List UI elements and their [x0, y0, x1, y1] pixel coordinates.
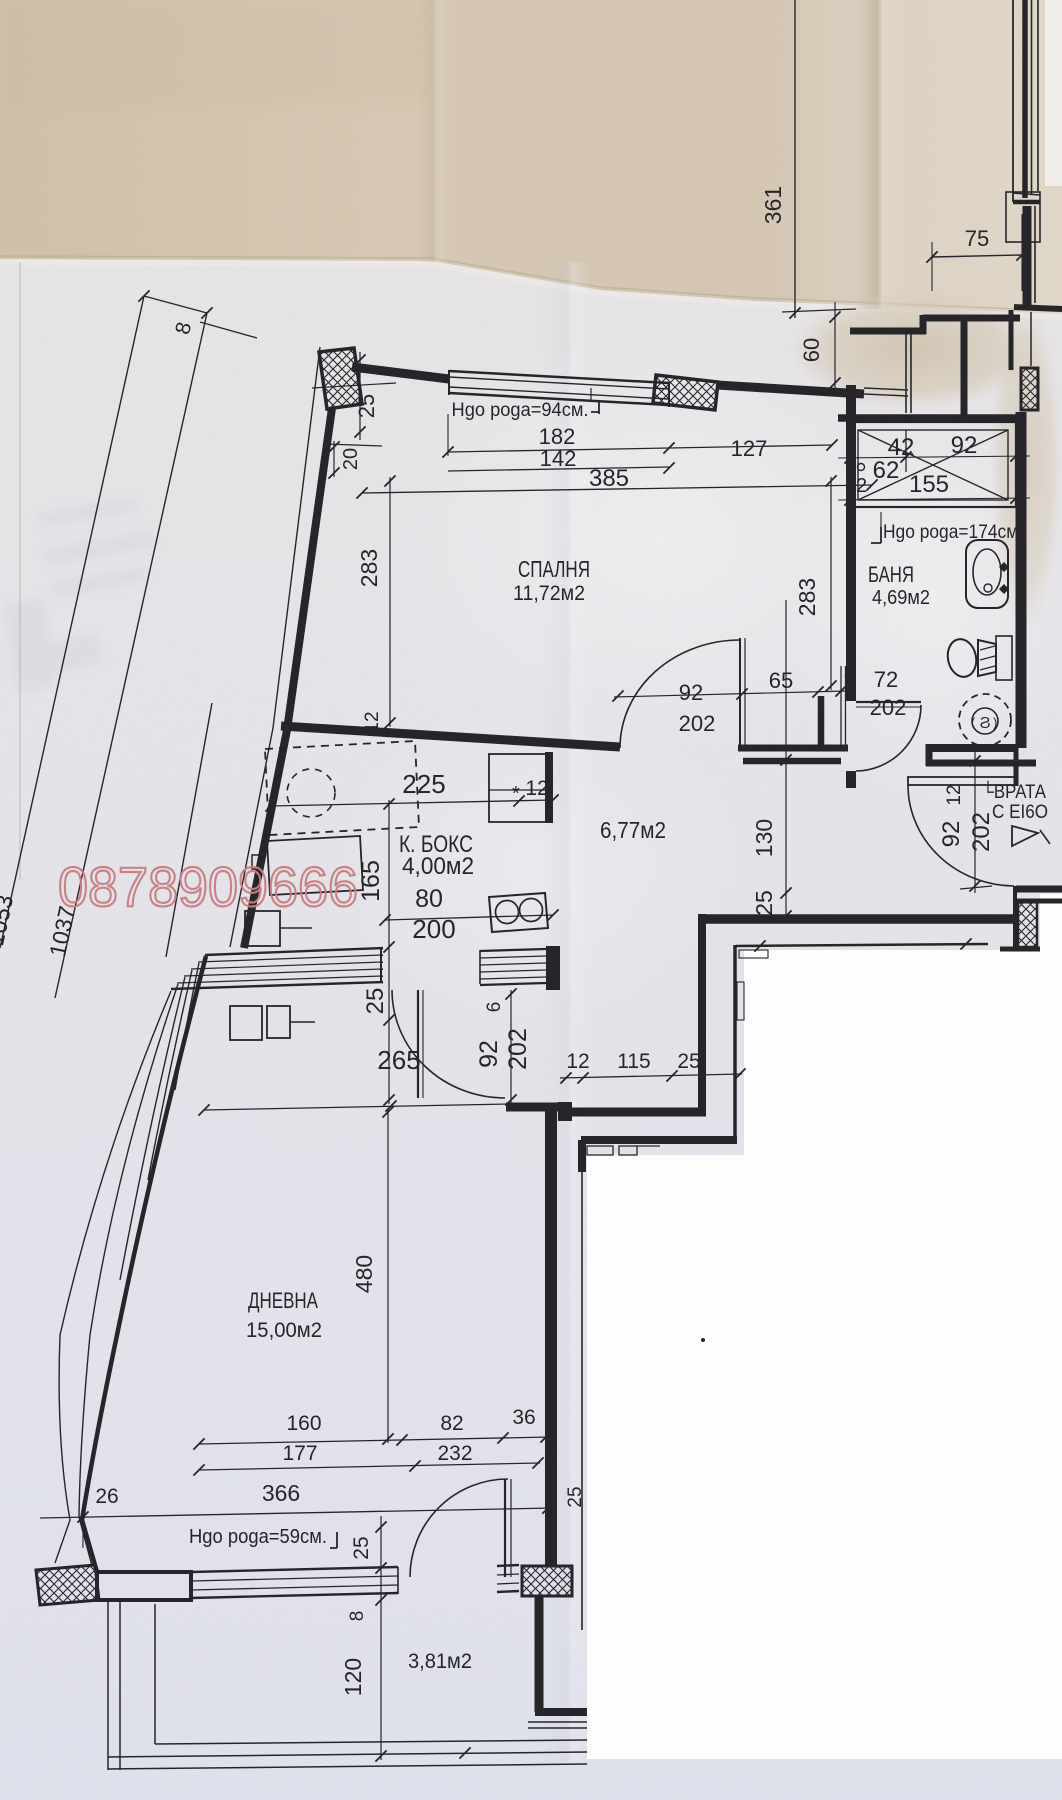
svg-text:6,77м2: 6,77м2 — [600, 817, 666, 843]
svg-text:75: 75 — [965, 226, 989, 251]
svg-text:25: 25 — [350, 1536, 373, 1559]
svg-text:25: 25 — [354, 394, 379, 418]
svg-text:12: 12 — [566, 1050, 589, 1073]
svg-text:62: 62 — [873, 457, 900, 484]
svg-text:└ВРАТА: └ВРАТА — [982, 780, 1046, 803]
svg-text:82: 82 — [440, 1412, 463, 1435]
svg-text:202: 202 — [968, 812, 995, 852]
svg-text:202: 202 — [679, 711, 716, 736]
svg-text:15,00м2: 15,00м2 — [246, 1319, 322, 1342]
svg-text:366: 366 — [262, 1480, 300, 1506]
svg-text:ДНЕВНА: ДНЕВНА — [248, 1288, 318, 1313]
svg-text:283: 283 — [356, 549, 382, 587]
svg-text:202: 202 — [504, 1028, 532, 1070]
svg-text:25: 25 — [677, 1050, 700, 1073]
svg-text:0878909666: 0878909666 — [58, 855, 358, 918]
svg-text:Ϩ: Ϩ — [980, 715, 991, 732]
svg-text:200: 200 — [412, 914, 455, 944]
svg-text:*: * — [512, 783, 520, 805]
svg-text:11,72м2: 11,72м2 — [513, 582, 585, 605]
svg-text:155: 155 — [909, 471, 949, 498]
svg-text:160: 160 — [286, 1412, 321, 1435]
svg-text:Hgo poga=174см.: Hgo poga=174см. — [883, 522, 1023, 543]
svg-text:361: 361 — [760, 186, 786, 224]
svg-text:С ЕI6О: С ЕI6О — [992, 802, 1048, 823]
svg-text:130: 130 — [751, 819, 777, 857]
svg-text:25: 25 — [751, 890, 777, 916]
svg-text:8: 8 — [347, 1611, 368, 1622]
svg-text:20: 20 — [340, 448, 362, 470]
svg-text:26: 26 — [95, 1485, 118, 1508]
svg-text:480: 480 — [351, 1255, 377, 1293]
svg-text:92: 92 — [938, 821, 965, 848]
svg-text:25: 25 — [362, 988, 389, 1015]
svg-text:60: 60 — [799, 338, 824, 362]
svg-text:225: 225 — [402, 769, 445, 799]
svg-text:): ) — [993, 715, 997, 730]
svg-text:12: 12 — [944, 784, 965, 805]
svg-text:80: 80 — [415, 885, 443, 913]
svg-text:283: 283 — [794, 578, 820, 616]
svg-text:92: 92 — [475, 1040, 503, 1068]
svg-text:3,81м2: 3,81м2 — [408, 1650, 472, 1673]
svg-text:165: 165 — [357, 860, 385, 902]
svg-text:232: 232 — [437, 1442, 472, 1465]
svg-text:Hgo poga=94см.: Hgo poga=94см. — [452, 400, 589, 421]
svg-text:БАНЯ: БАНЯ — [868, 562, 914, 587]
svg-text:4,00м2: 4,00м2 — [402, 853, 474, 880]
svg-text:65: 65 — [769, 668, 793, 693]
svg-text:92: 92 — [951, 432, 978, 459]
svg-text:6: 6 — [484, 1002, 505, 1013]
svg-text:120: 120 — [340, 1658, 366, 1696]
svg-text:12: 12 — [525, 777, 548, 800]
svg-text:142: 142 — [540, 446, 577, 471]
svg-text:265: 265 — [377, 1045, 420, 1075]
svg-text:25: 25 — [565, 1486, 586, 1507]
svg-text:Hgo poga=59см.: Hgo poga=59см. — [189, 1526, 327, 1548]
svg-text:92: 92 — [679, 680, 703, 705]
svg-text:385: 385 — [589, 465, 629, 492]
svg-text:72: 72 — [874, 667, 898, 692]
svg-text:115: 115 — [617, 1050, 650, 1073]
svg-text:12: 12 — [845, 475, 867, 497]
svg-text:12: 12 — [362, 711, 383, 732]
svg-text:36: 36 — [512, 1406, 535, 1429]
svg-text:127: 127 — [731, 436, 768, 461]
svg-text:(: ( — [971, 715, 976, 730]
svg-text:177: 177 — [282, 1442, 317, 1465]
svg-text:4,69м2: 4,69м2 — [872, 587, 930, 609]
svg-text:СПАЛНЯ: СПАЛНЯ — [518, 556, 590, 582]
